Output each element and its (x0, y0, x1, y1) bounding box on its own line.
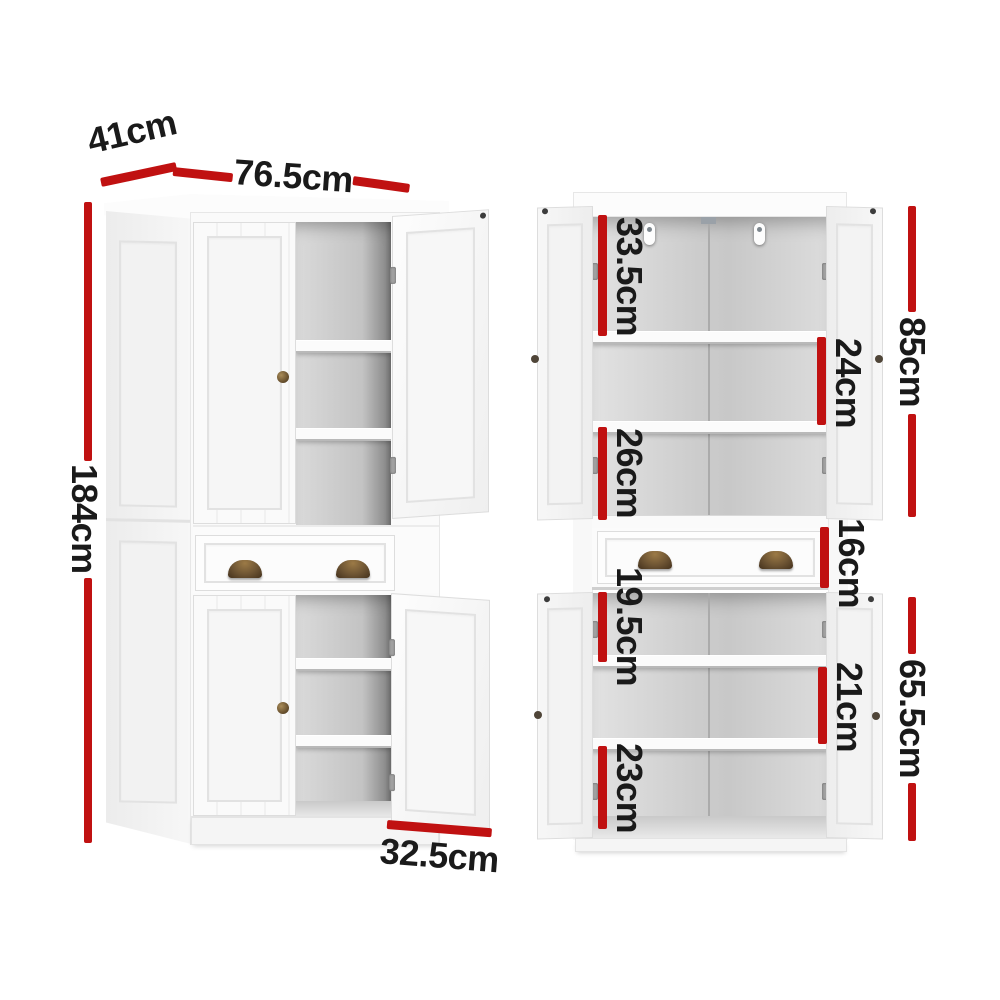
door-knob (872, 712, 880, 720)
dim-bar-drawer (820, 527, 829, 588)
dim-bar-upper-shelf-2 (817, 337, 826, 425)
shelf (296, 340, 391, 351)
shelf (296, 428, 391, 439)
dim-bar-lower-shelf-1 (598, 592, 607, 662)
side-recess-panel (119, 540, 177, 803)
dim-bar-lower-shelf-3 (598, 746, 607, 829)
upper-left-door-closed (193, 222, 296, 524)
drawer-section (193, 525, 439, 593)
side-recess-panel (119, 240, 177, 507)
dim-line-upper-section-b (908, 414, 916, 517)
hinge-cap (480, 212, 486, 218)
lower-right-door-open (391, 593, 490, 831)
door-knob (531, 355, 539, 363)
drawer-cup-handle (228, 560, 262, 578)
upper-compartment-interior (296, 222, 391, 525)
dim-line-upper-section-a (908, 206, 916, 312)
dim-label-door-width: 32.5cm (378, 830, 500, 881)
door-recess-panel (207, 609, 282, 802)
door-hinge (389, 774, 395, 791)
dim-line-height-lower (84, 578, 92, 843)
dim-line-lower-section-b (908, 783, 916, 841)
door-recess-panel (207, 236, 282, 510)
door-hinge (390, 267, 396, 284)
door-recess-panel (547, 223, 583, 505)
lower-left-door-closed (193, 595, 296, 816)
dim-label-lower-shelf-3: 23cm (607, 743, 651, 833)
dim-label-height: 184cm (62, 464, 106, 574)
dim-line-width-left (173, 167, 234, 182)
door-recess-panel (406, 227, 475, 503)
drawer-cup-handle (759, 551, 793, 569)
back-panel-divider (708, 217, 710, 515)
dim-bar-upper-shelf-1 (598, 215, 607, 336)
keyhole-hanger (754, 223, 765, 245)
lower-compartment-interior (296, 595, 391, 817)
dim-label-lower-shelf-2: 21cm (827, 662, 871, 752)
dim-bar-lower-shelf-2 (818, 667, 827, 744)
cabinet-floor (296, 801, 391, 817)
upper-left-door-open (537, 206, 593, 520)
drawer-front (195, 535, 395, 591)
dim-line-depth (100, 162, 177, 187)
back-panel-divider (708, 593, 710, 838)
door-knob (875, 355, 883, 363)
hinge-cap (544, 596, 550, 602)
upper-right-door-open (392, 209, 489, 519)
cabinet-plinth (575, 838, 847, 852)
door-recess-panel (405, 609, 476, 816)
side-seam (106, 518, 191, 523)
drawer-cup-handle (336, 560, 370, 578)
dim-label-lower-shelf-1: 19.5cm (607, 567, 651, 686)
door-recess-panel (547, 607, 583, 825)
dim-label-upper-shelf-1: 33.5cm (607, 217, 651, 336)
door-hinge (389, 639, 395, 656)
door-knob (534, 711, 542, 719)
dim-label-lower-section: 65.5cm (890, 659, 934, 778)
dim-label-upper-section: 85cm (890, 317, 934, 407)
cabinet-side-panel (106, 211, 191, 844)
shelf (296, 735, 391, 746)
cabinet-top-panel (573, 192, 847, 217)
hinge-cap (870, 208, 876, 214)
dim-line-lower-section-a (908, 597, 916, 654)
door-knob (277, 702, 289, 714)
dim-label-drawer: 16cm (829, 518, 873, 608)
door-hinge (390, 457, 396, 474)
wall-bracket (701, 217, 716, 224)
dim-line-height-upper (84, 202, 92, 461)
shelf (296, 658, 391, 669)
dim-label-depth: 41cm (83, 101, 180, 162)
dim-label-upper-shelf-3: 26cm (607, 428, 651, 518)
dim-bar-upper-shelf-3 (598, 427, 607, 520)
dim-label-width: 76.5cm (233, 151, 355, 201)
dim-label-upper-shelf-2: 24cm (826, 338, 870, 428)
hinge-cap (542, 208, 548, 214)
cabinet-dimension-diagram: 41cm 76.5cm 184cm 32.5cm (0, 0, 1000, 1000)
dim-line-width-right (352, 176, 410, 193)
door-knob (277, 371, 289, 383)
lower-left-door-open (537, 592, 593, 839)
